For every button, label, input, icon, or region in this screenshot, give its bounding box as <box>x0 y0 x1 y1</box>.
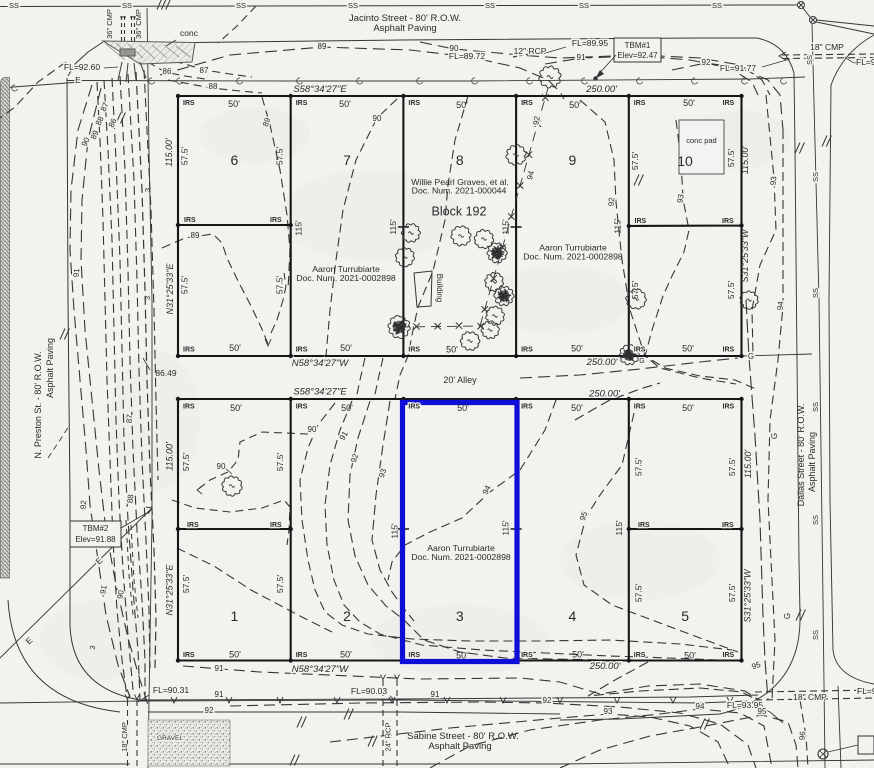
svg-text:88: 88 <box>209 82 218 91</box>
svg-text:conc: conc <box>180 28 199 38</box>
svg-text:IRS: IRS <box>521 347 533 354</box>
svg-text:50': 50' <box>571 403 583 413</box>
svg-text:50': 50' <box>457 403 469 413</box>
svg-text:IRS: IRS <box>634 652 646 659</box>
svg-text:N31°25'33"E: N31°25'33"E <box>165 262 175 314</box>
svg-text:12" RCP: 12" RCP <box>514 46 547 56</box>
svg-text:SS: SS <box>348 1 358 10</box>
svg-text:SS: SS <box>579 1 589 10</box>
svg-text:FL=9: FL=9 <box>857 686 874 696</box>
svg-text:Building: Building <box>435 274 444 302</box>
svg-text:24" RCP: 24" RCP <box>384 723 393 752</box>
svg-text:94: 94 <box>776 300 786 310</box>
svg-text:FL=92.60: FL=92.60 <box>64 62 100 72</box>
svg-text:SS: SS <box>805 55 814 65</box>
svg-text:Elev=92.47: Elev=92.47 <box>617 51 658 60</box>
svg-text:57.5': 57.5' <box>630 281 640 300</box>
svg-text:92: 92 <box>79 499 89 509</box>
svg-text:IRS: IRS <box>296 404 308 411</box>
svg-text:50': 50' <box>683 98 695 108</box>
svg-text:Doc. Num. 2021-0002898: Doc. Num. 2021-0002898 <box>523 252 623 262</box>
svg-text:IRS: IRS <box>187 522 199 529</box>
svg-text:50': 50' <box>228 99 240 109</box>
svg-text:92: 92 <box>205 706 214 715</box>
svg-text:50': 50' <box>340 343 352 353</box>
svg-text:87: 87 <box>200 66 209 75</box>
svg-text:96: 96 <box>798 730 808 740</box>
svg-text:N31°25'33"E: N31°25'33"E <box>165 563 175 615</box>
svg-text:IRS: IRS <box>270 217 282 224</box>
svg-text:IRS: IRS <box>270 522 282 529</box>
svg-text:90: 90 <box>217 462 226 471</box>
svg-text:57.5': 57.5' <box>275 147 285 166</box>
svg-text:Doc. Num. 2021-0002898: Doc. Num. 2021-0002898 <box>296 273 396 283</box>
svg-text:93: 93 <box>604 707 613 716</box>
svg-text:IRS: IRS <box>521 404 533 411</box>
svg-text:S31°25'33"W: S31°25'33"W <box>743 568 753 623</box>
svg-text:50': 50' <box>229 650 241 660</box>
svg-text:92: 92 <box>607 196 617 206</box>
svg-text:IRS: IRS <box>723 347 735 354</box>
svg-text:57.5': 57.5' <box>180 276 190 295</box>
svg-text:18" CMP: 18" CMP <box>793 692 827 702</box>
svg-text:9: 9 <box>569 152 577 168</box>
svg-text:IRS: IRS <box>408 404 420 411</box>
svg-text:57.5': 57.5' <box>275 453 285 472</box>
svg-text:91: 91 <box>577 53 586 62</box>
svg-text:57.5': 57.5' <box>181 575 191 594</box>
svg-text:92: 92 <box>702 58 711 67</box>
svg-text:57.5': 57.5' <box>726 281 736 300</box>
svg-text:2: 2 <box>343 608 351 624</box>
svg-text:57.5': 57.5' <box>275 276 285 295</box>
svg-text:91: 91 <box>215 690 224 699</box>
svg-text:90: 90 <box>373 114 382 123</box>
svg-text:91: 91 <box>215 664 224 673</box>
svg-text:FL=90.03: FL=90.03 <box>351 686 387 696</box>
svg-text:250.00': 250.00' <box>585 84 618 95</box>
svg-text:5: 5 <box>681 608 689 624</box>
svg-text:IRS: IRS <box>634 347 646 354</box>
svg-text:50': 50' <box>456 100 468 110</box>
svg-text:50': 50' <box>341 403 353 413</box>
svg-text:250.00': 250.00' <box>586 357 619 368</box>
svg-text:57.5': 57.5' <box>634 584 644 603</box>
svg-text:57.5': 57.5' <box>634 458 644 477</box>
svg-text:G: G <box>748 352 754 361</box>
svg-text:50': 50' <box>572 650 584 660</box>
svg-text:50': 50' <box>229 343 241 353</box>
svg-text:Asphalt Paving: Asphalt Paving <box>428 741 491 752</box>
svg-text:91: 91 <box>72 267 82 277</box>
svg-text:FL=9: FL=9 <box>856 57 874 67</box>
svg-text:SS: SS <box>811 630 820 640</box>
svg-text:91: 91 <box>431 690 440 699</box>
svg-text:115': 115' <box>390 523 400 539</box>
svg-text:4: 4 <box>569 608 577 624</box>
svg-text:IRS: IRS <box>183 100 195 107</box>
svg-text:50': 50' <box>446 345 458 355</box>
svg-text:IRS: IRS <box>183 652 195 659</box>
svg-text:IRS: IRS <box>723 404 735 411</box>
svg-text:IRS: IRS <box>296 652 308 659</box>
svg-text:18" CMP: 18" CMP <box>120 722 129 752</box>
svg-text:115': 115' <box>388 219 398 235</box>
svg-text:IRS: IRS <box>722 522 734 529</box>
svg-text:250.00': 250.00' <box>588 389 621 400</box>
svg-text:93: 93 <box>769 175 779 185</box>
svg-text:7: 7 <box>343 152 351 168</box>
svg-text:Asphalt Paving: Asphalt Paving <box>45 338 55 398</box>
svg-text:Asphalt Paving: Asphalt Paving <box>807 432 817 492</box>
svg-text:57.5': 57.5' <box>727 584 737 603</box>
svg-text:IRS: IRS <box>184 217 196 224</box>
svg-text:SS: SS <box>9 1 19 10</box>
svg-text:57.5': 57.5' <box>630 152 640 171</box>
svg-text:115': 115' <box>294 220 304 236</box>
svg-text:57.5': 57.5' <box>275 575 285 594</box>
svg-text:57.5': 57.5' <box>727 458 737 477</box>
svg-text:FL=90.31: FL=90.31 <box>153 685 189 695</box>
svg-text:IRS: IRS <box>521 100 533 107</box>
svg-text:89: 89 <box>318 42 327 51</box>
svg-text:88: 88 <box>126 493 136 503</box>
svg-text:115': 115' <box>501 520 511 536</box>
svg-text:36" CMP: 36" CMP <box>134 9 143 39</box>
svg-text:50': 50' <box>339 99 351 109</box>
svg-text:1: 1 <box>230 608 238 624</box>
svg-text:SS: SS <box>236 1 246 10</box>
svg-text:E: E <box>75 75 81 85</box>
svg-text:90: 90 <box>308 425 317 434</box>
svg-text:50': 50' <box>682 403 694 413</box>
svg-text:N58°34'27"W: N58°34'27"W <box>292 358 350 369</box>
svg-text:89: 89 <box>191 231 200 240</box>
svg-text:50': 50' <box>230 403 242 413</box>
svg-text:50': 50' <box>340 650 352 660</box>
svg-text:IRS: IRS <box>638 522 650 529</box>
svg-text:115.00': 115.00' <box>740 145 750 174</box>
svg-text:N. Preston St. - 80' R.O.W.: N. Preston St. - 80' R.O.W. <box>33 351 43 458</box>
svg-text:92: 92 <box>543 696 552 705</box>
svg-text:115': 115' <box>612 218 622 234</box>
svg-text:S31°25'33"W: S31°25'33"W <box>740 228 750 283</box>
svg-text:57.5': 57.5' <box>726 149 736 168</box>
svg-text:115': 115' <box>614 520 624 536</box>
svg-text:115.00': 115.00' <box>743 449 753 478</box>
svg-text:IRS: IRS <box>408 347 420 354</box>
svg-text:86: 86 <box>163 67 172 76</box>
svg-text:FL=89.95: FL=89.95 <box>572 38 608 48</box>
svg-text:G: G <box>639 358 644 365</box>
svg-text:IRS: IRS <box>722 218 734 225</box>
svg-text:SS: SS <box>811 402 820 412</box>
svg-text:S58°34'27"E: S58°34'27"E <box>293 387 347 398</box>
svg-text:18" CMP: 18" CMP <box>810 42 844 52</box>
svg-text:N58°34'27"W: N58°34'27"W <box>292 664 350 675</box>
svg-text:TBM#2: TBM#2 <box>83 524 109 533</box>
svg-text:250.00': 250.00' <box>589 661 622 672</box>
svg-text:95: 95 <box>758 707 767 716</box>
svg-text:3: 3 <box>143 296 152 300</box>
svg-text:S58°34'27"E: S58°34'27"E <box>293 84 347 95</box>
svg-text:SS: SS <box>122 1 132 10</box>
svg-text:115': 115' <box>501 219 511 235</box>
svg-text:94: 94 <box>696 702 705 711</box>
svg-text:SS: SS <box>811 288 820 298</box>
svg-text:57.5': 57.5' <box>180 147 190 166</box>
svg-text:IRS: IRS <box>408 652 420 659</box>
svg-text:50': 50' <box>684 651 696 661</box>
svg-text:Doc. Num. 2021-000044: Doc. Num. 2021-000044 <box>412 186 507 196</box>
svg-text:57.5': 57.5' <box>181 453 191 472</box>
svg-text:50': 50' <box>456 651 468 661</box>
svg-text:87: 87 <box>125 413 135 423</box>
svg-text:115.00': 115.00' <box>165 442 175 471</box>
svg-text:50': 50' <box>569 100 581 110</box>
svg-text:IRS: IRS <box>634 100 646 107</box>
svg-text:IRS: IRS <box>723 652 735 659</box>
svg-text:IRS: IRS <box>183 347 195 354</box>
svg-text:SS: SS <box>712 1 722 10</box>
svg-text:IRS: IRS <box>634 404 646 411</box>
svg-text:FL=91.77: FL=91.77 <box>720 63 756 73</box>
svg-text:SS: SS <box>485 1 495 10</box>
svg-text:TBM#1: TBM#1 <box>625 41 651 50</box>
svg-text:IRS: IRS <box>521 652 533 659</box>
svg-text:Doc. Num. 2021-0002898: Doc. Num. 2021-0002898 <box>411 552 511 562</box>
svg-text:IRS: IRS <box>183 404 195 411</box>
svg-text:IRS: IRS <box>635 218 647 225</box>
svg-text:SS: SS <box>811 172 820 182</box>
svg-text:10: 10 <box>677 153 693 169</box>
svg-text:IRS: IRS <box>408 100 420 107</box>
svg-text:GRAVEL: GRAVEL <box>157 735 183 742</box>
svg-text:IRS: IRS <box>296 347 308 354</box>
svg-text:SS: SS <box>811 515 820 525</box>
svg-text:Dallas Street - 80' R.O.W.: Dallas Street - 80' R.O.W. <box>796 404 806 507</box>
svg-text:G: G <box>783 613 792 619</box>
svg-text:conc pad: conc pad <box>686 136 716 145</box>
svg-text:IRS: IRS <box>296 100 308 107</box>
svg-text:115.00': 115.00' <box>164 138 174 167</box>
svg-text:86.49: 86.49 <box>155 368 177 378</box>
svg-text:8: 8 <box>456 152 464 168</box>
svg-text:90: 90 <box>450 44 459 53</box>
svg-text:50': 50' <box>682 344 694 354</box>
svg-text:20' Alley: 20' Alley <box>443 375 477 385</box>
svg-text:Block 192: Block 192 <box>432 205 487 219</box>
svg-text:IRS: IRS <box>723 100 735 107</box>
svg-text:Asphalt Paving: Asphalt Paving <box>373 23 436 34</box>
svg-text:Elev=91.88: Elev=91.88 <box>75 535 116 544</box>
svg-text:3: 3 <box>456 608 464 624</box>
svg-text:6: 6 <box>230 152 238 168</box>
svg-text:50': 50' <box>571 344 583 354</box>
svg-text:3: 3 <box>143 188 152 192</box>
svg-text:36" CMP: 36" CMP <box>105 9 114 39</box>
svg-text:G: G <box>770 433 779 439</box>
